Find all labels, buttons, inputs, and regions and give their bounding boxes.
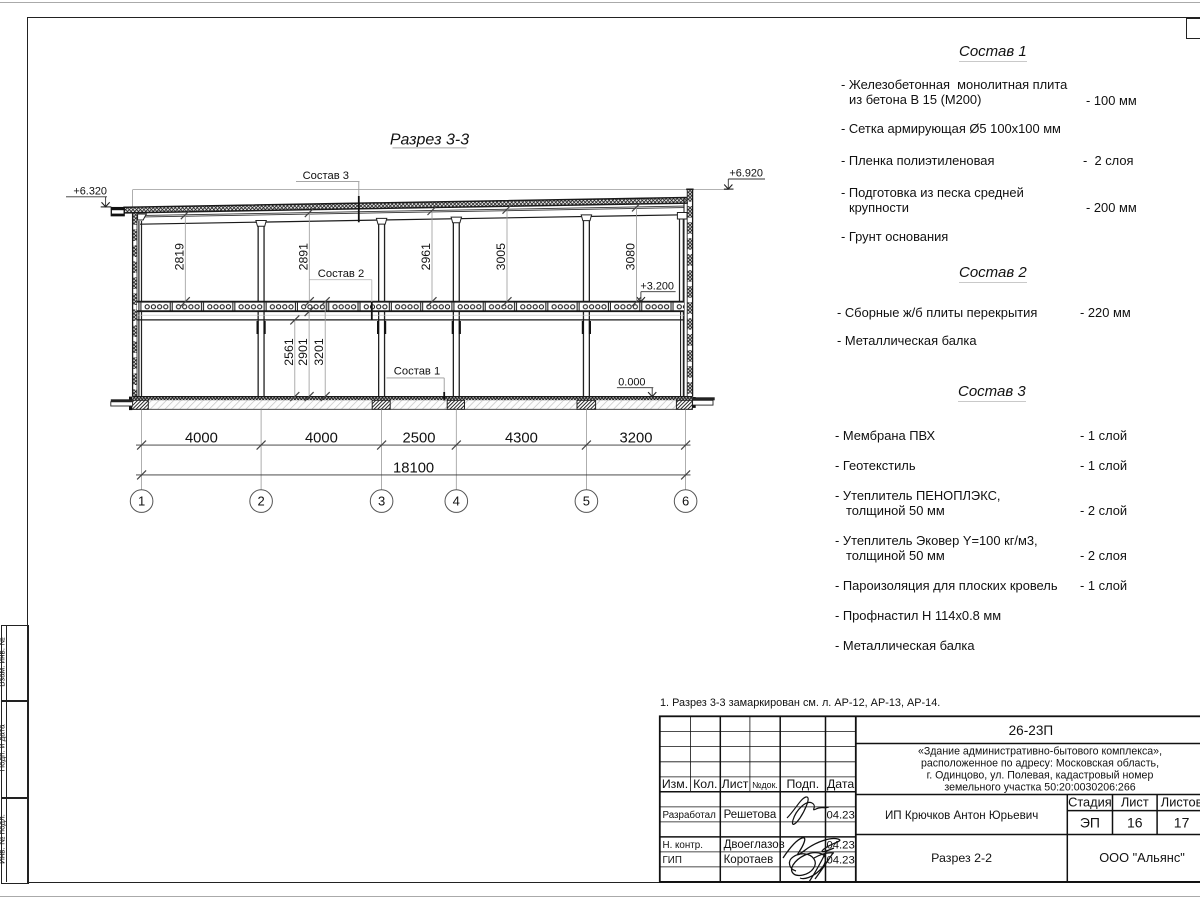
svg-text:3005: 3005: [494, 243, 508, 271]
svg-text:16: 16: [1127, 815, 1143, 831]
svg-text:Н. контр.: Н. контр.: [663, 840, 703, 851]
svg-text:+3.200: +3.200: [640, 280, 674, 292]
svg-text:2561: 2561: [282, 338, 296, 366]
svg-text:№док.: №док.: [752, 780, 778, 790]
svg-text:Разрез 3-3: Разрез 3-3: [390, 132, 469, 149]
svg-text:0.000: 0.000: [618, 376, 645, 388]
svg-text:3200: 3200: [620, 431, 653, 447]
svg-text:Коротаев: Коротаев: [724, 854, 774, 866]
svg-text:Изм.: Изм.: [662, 777, 688, 791]
svg-text:5: 5: [583, 494, 590, 509]
svg-text:2500: 2500: [403, 431, 436, 447]
svg-text:Дата: Дата: [827, 777, 854, 791]
svg-text:Решетова: Решетова: [724, 809, 777, 821]
svg-text:4300: 4300: [505, 431, 538, 447]
svg-text:18100: 18100: [393, 460, 434, 476]
svg-text:3: 3: [378, 494, 385, 509]
svg-text:Кол.: Кол.: [693, 777, 717, 791]
svg-text:Разрез 2-2: Разрез 2-2: [931, 851, 992, 865]
svg-text:Подп.: Подп.: [786, 777, 819, 791]
svg-text:26-23П: 26-23П: [1009, 723, 1054, 738]
svg-text:расположенное по адресу: Моско: расположенное по адресу: Московская обла…: [921, 758, 1159, 770]
svg-text:Состав 2: Состав 2: [318, 268, 364, 280]
svg-text:6: 6: [682, 494, 689, 509]
svg-text:Состав 1: Состав 1: [394, 365, 440, 377]
svg-text:ИП Крючков Антон Юрьевич: ИП Крючков Антон Юрьевич: [885, 809, 1038, 822]
svg-text:3080: 3080: [624, 243, 638, 271]
svg-text:2891: 2891: [296, 243, 310, 271]
svg-text:17: 17: [1174, 815, 1190, 831]
svg-text:2819: 2819: [172, 243, 186, 271]
svg-text:4000: 4000: [305, 431, 338, 447]
svg-text:ООО "Альянс": ООО "Альянс": [1099, 850, 1185, 865]
svg-text:ГИП: ГИП: [663, 855, 682, 866]
svg-text:Листов: Листов: [1161, 794, 1200, 809]
svg-text:Лист: Лист: [722, 777, 749, 791]
svg-text:Двоеглазов: Двоеглазов: [724, 839, 785, 851]
svg-text:земельного участка 50:20:00302: земельного участка 50:20:0030206:266: [944, 782, 1135, 794]
svg-text:Состав 3: Состав 3: [303, 170, 349, 182]
svg-text:4000: 4000: [185, 431, 218, 447]
svg-text:4: 4: [453, 494, 460, 509]
svg-text:2: 2: [257, 494, 264, 509]
svg-text:+6.320: +6.320: [73, 186, 107, 198]
svg-text:Стадия: Стадия: [1068, 794, 1112, 809]
svg-text:04.23: 04.23: [826, 810, 854, 822]
svg-text:2901: 2901: [296, 338, 310, 366]
svg-text:2961: 2961: [419, 243, 433, 271]
svg-text:+6.920: +6.920: [729, 168, 763, 180]
svg-text:Разработал: Разработал: [663, 810, 717, 821]
svg-text:3201: 3201: [312, 338, 326, 366]
svg-text:г. Одинцово, ул. Полевая, када: г. Одинцово, ул. Полевая, кадастровый но…: [927, 770, 1154, 782]
svg-text:ЭП: ЭП: [1080, 815, 1100, 831]
svg-text:«Здание административно-бытово: «Здание административно-бытового комплек…: [918, 746, 1162, 758]
svg-text:1: 1: [138, 494, 145, 509]
svg-text:Лист: Лист: [1121, 794, 1149, 809]
